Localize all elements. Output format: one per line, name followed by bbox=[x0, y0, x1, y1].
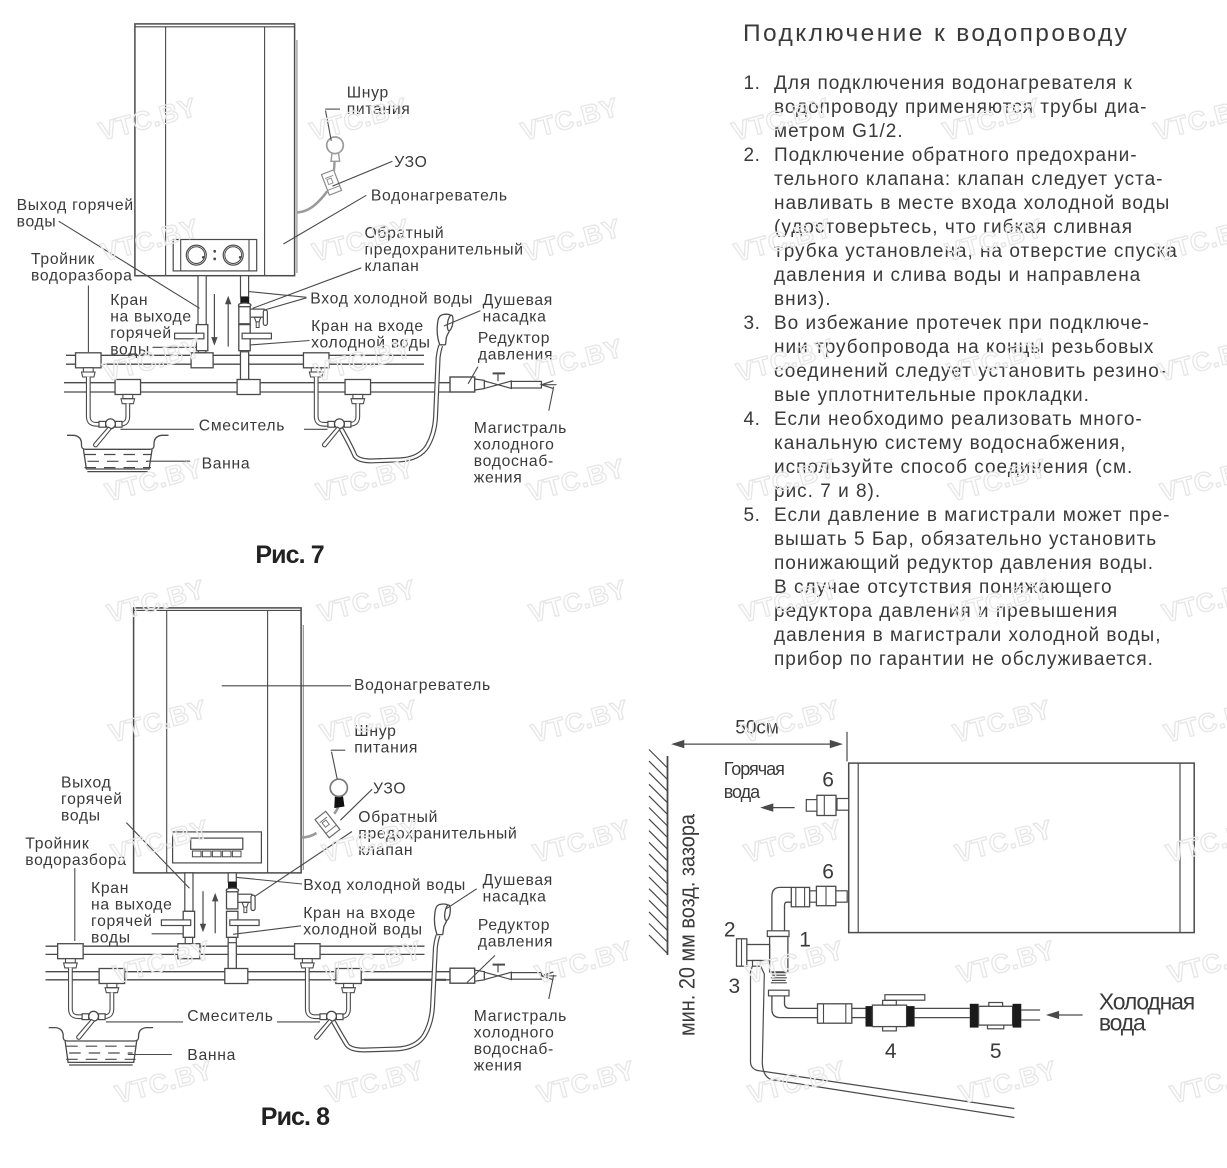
svg-text:VTC.BY: VTC.BY bbox=[1159, 574, 1227, 629]
svg-text:Редуктор: Редуктор bbox=[478, 330, 550, 347]
svg-text:холодного: холодного bbox=[474, 1025, 555, 1042]
svg-text:питания: питания bbox=[354, 740, 418, 757]
svg-text:Обратный: Обратный bbox=[365, 225, 445, 242]
svg-text:водоснаб-: водоснаб- bbox=[474, 453, 554, 470]
svg-text:питания: питания bbox=[347, 101, 411, 118]
svg-text:Обратный: Обратный bbox=[358, 809, 438, 826]
svg-text:Кран на входе: Кран на входе bbox=[311, 318, 424, 335]
svg-text:Вход холодной воды: Вход холодной воды bbox=[310, 290, 473, 307]
svg-text:горячей: горячей bbox=[91, 913, 153, 930]
svg-text:Смеситель: Смеситель bbox=[187, 1008, 273, 1025]
svg-text:воды: воды bbox=[17, 214, 57, 231]
svg-text:предохранительный: предохранительный bbox=[358, 826, 517, 843]
svg-text:клапан: клапан bbox=[365, 258, 420, 275]
svg-text:6: 6 bbox=[822, 861, 834, 884]
svg-text:холодной воды: холодной воды bbox=[303, 922, 423, 939]
svg-text:Кран на входе: Кран на входе bbox=[303, 905, 416, 922]
svg-text:насадка: насадка bbox=[483, 888, 547, 905]
svg-text:предохранительный: предохранительный bbox=[365, 242, 524, 259]
svg-text:холодной воды: холодной воды bbox=[311, 334, 431, 351]
svg-text:VTC.BY: VTC.BY bbox=[1157, 453, 1227, 508]
svg-text:вода: вода bbox=[724, 782, 761, 802]
svg-text:водоснаб-: водоснаб- bbox=[474, 1041, 554, 1058]
svg-text:жения: жения bbox=[474, 469, 523, 486]
svg-text:воды: воды bbox=[61, 807, 101, 824]
svg-text:УЗО: УЗО bbox=[373, 780, 406, 797]
svg-text:жения: жения bbox=[474, 1058, 523, 1075]
svg-text:УЗО: УЗО bbox=[394, 154, 427, 171]
svg-text:Душевая: Душевая bbox=[483, 872, 553, 889]
svg-text:Водонагреватель: Водонагреватель bbox=[371, 187, 508, 204]
svg-text:воды: воды bbox=[91, 929, 131, 946]
svg-text:3: 3 bbox=[729, 975, 741, 998]
svg-text:2: 2 bbox=[724, 919, 736, 942]
svg-text:Шнур: Шнур bbox=[347, 85, 389, 102]
svg-text:Горячая: Горячая bbox=[724, 759, 784, 779]
svg-text:Магистраль: Магистраль bbox=[474, 420, 567, 437]
svg-text:насадка: насадка bbox=[483, 308, 547, 325]
svg-text:Редуктор: Редуктор bbox=[478, 917, 550, 934]
svg-text:вода: вода bbox=[1099, 1010, 1146, 1036]
svg-text:Ванна: Ванна bbox=[187, 1047, 236, 1064]
svg-text:5: 5 bbox=[990, 1040, 1002, 1063]
svg-text:давления: давления bbox=[478, 347, 553, 364]
svg-text:Водонагреватель: Водонагреватель bbox=[354, 677, 491, 694]
svg-text:Шнур: Шнур bbox=[354, 723, 396, 740]
svg-text:холодного: холодного bbox=[474, 436, 555, 453]
svg-text:Тройник: Тройник bbox=[25, 835, 89, 852]
svg-text:1: 1 bbox=[799, 929, 811, 952]
svg-text:Выход горячей: Выход горячей bbox=[17, 197, 134, 214]
svg-text:Тройник: Тройник bbox=[31, 251, 95, 268]
svg-text:Вход холодной воды: Вход холодной воды bbox=[303, 877, 466, 894]
svg-text:мин. 20 мм возд. зазора: мин. 20 мм возд. зазора bbox=[675, 813, 700, 1036]
svg-text:водоразбора: водоразбора bbox=[25, 852, 127, 869]
svg-text:горячей: горячей bbox=[110, 325, 172, 342]
svg-text:VTC.BY: VTC.BY bbox=[1150, 92, 1227, 147]
svg-text:Кран: Кран bbox=[91, 880, 129, 897]
svg-text:Ванна: Ванна bbox=[202, 455, 251, 472]
svg-text:давления: давления bbox=[478, 934, 553, 951]
svg-text:6: 6 bbox=[822, 769, 834, 792]
svg-text:Смеситель: Смеситель bbox=[199, 418, 285, 435]
svg-text:водоразбора: водоразбора bbox=[31, 267, 133, 284]
svg-text:Кран: Кран bbox=[110, 292, 148, 309]
svg-text:воды: воды bbox=[110, 341, 150, 358]
svg-text:горячей: горячей bbox=[61, 791, 123, 808]
svg-text:на выходе: на выходе bbox=[110, 308, 192, 325]
svg-text:Выход: Выход bbox=[61, 774, 111, 791]
svg-text:на выходе: на выходе bbox=[91, 896, 173, 913]
svg-text:Душевая: Душевая bbox=[483, 292, 553, 309]
svg-text:50см: 50см bbox=[735, 718, 779, 739]
svg-text:Магистраль: Магистраль bbox=[474, 1008, 567, 1025]
svg-text:4: 4 bbox=[885, 1040, 897, 1063]
svg-text:клапан: клапан bbox=[358, 842, 413, 859]
